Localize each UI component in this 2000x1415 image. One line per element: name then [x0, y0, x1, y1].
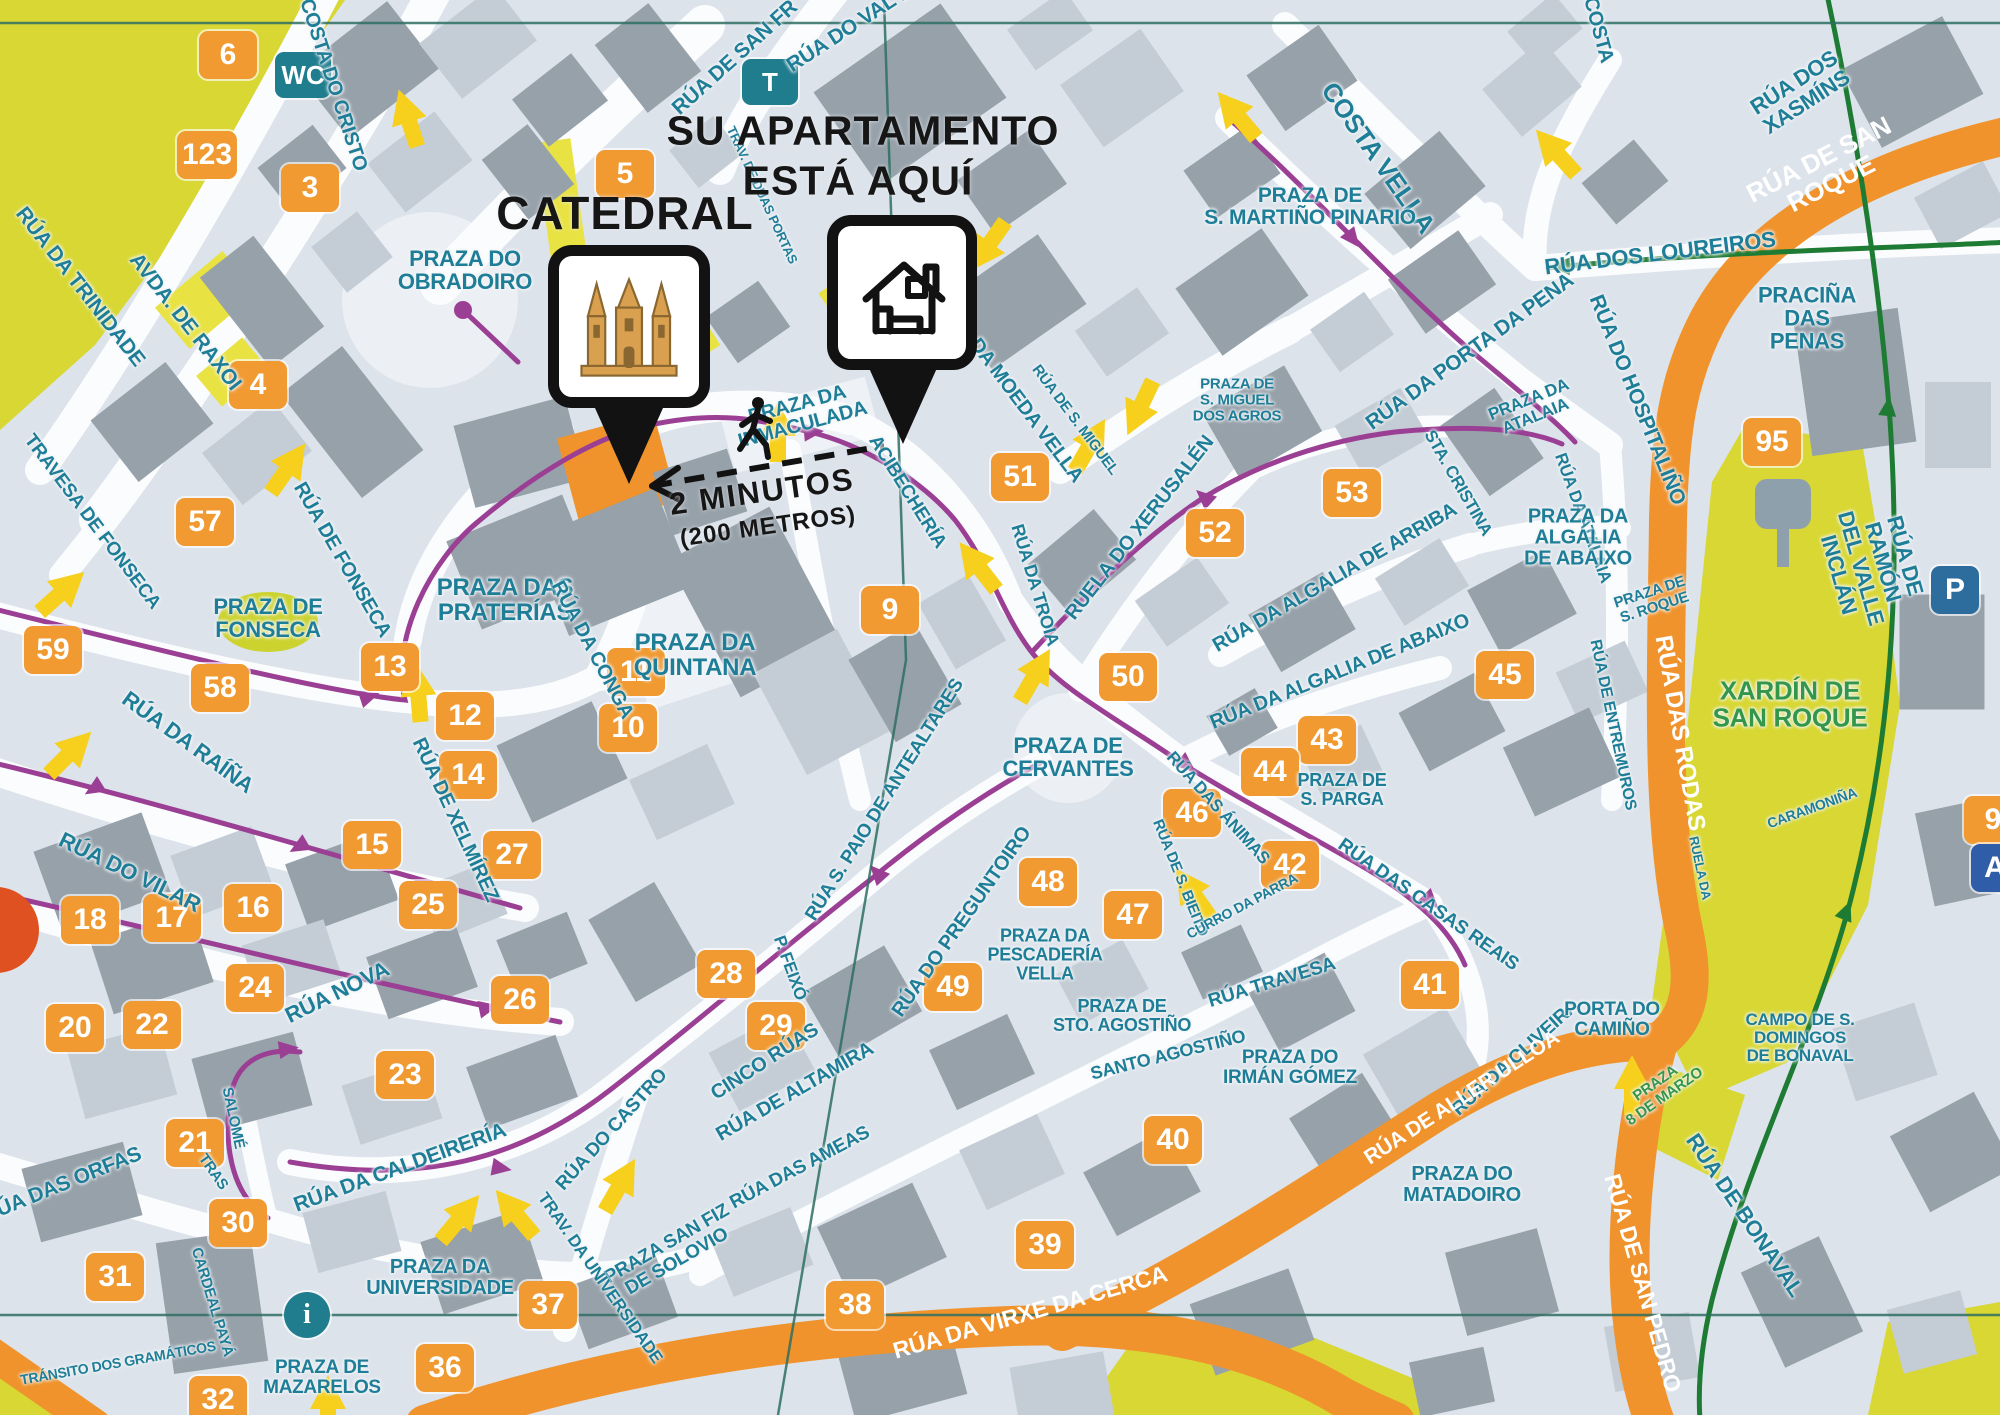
- marker-31[interactable]: 31: [86, 1253, 144, 1301]
- street-label: PRAZA DA QUINTANA: [634, 630, 756, 680]
- apartment-title-line2: ESTÁ AQUÍ: [743, 158, 974, 205]
- marker-41[interactable]: 41: [1401, 961, 1459, 1009]
- street-label: RÚA NOVA: [281, 957, 392, 1027]
- marker-26[interactable]: 26: [491, 976, 549, 1024]
- street-label: PRAZA DE STO. AGOSTIÑO: [1053, 997, 1191, 1035]
- street-label: PRAZA SAN FIZ DE SOLOVIO: [601, 1201, 742, 1306]
- map-overlay: 6WC12335T4575958131112141527102516171824…: [0, 0, 2000, 1415]
- cathedral-pin[interactable]: [548, 245, 710, 408]
- street-label: PRAZA DA ATALAIA: [1486, 376, 1578, 441]
- street-label: PRAZA DE S. PARGA: [1298, 771, 1387, 809]
- marker-13[interactable]: 13: [361, 643, 419, 691]
- street-label: RÚA DE RAMÓN DEL VALLE INCLÁN: [1810, 491, 1934, 640]
- street-label: PRAZA DO IRMÁN GÓMEZ: [1223, 1048, 1357, 1088]
- marker-12[interactable]: 12: [436, 692, 494, 740]
- street-label: RÚA DA TRINIDADE: [11, 203, 149, 371]
- marker-123[interactable]: 123: [177, 131, 237, 179]
- marker-20[interactable]: 20: [46, 1004, 104, 1052]
- map-stage: 6WC12335T4575958131112141527102516171824…: [0, 0, 2000, 1415]
- marker-37[interactable]: 37: [519, 1281, 577, 1329]
- marker-3[interactable]: 3: [281, 164, 339, 212]
- marker-40[interactable]: 40: [1144, 1116, 1202, 1164]
- marker-30[interactable]: 30: [209, 1199, 267, 1247]
- marker-95[interactable]: 95: [1743, 418, 1801, 466]
- marker-24[interactable]: 24: [226, 964, 284, 1012]
- street-label: RÚA DE ALLER ULLOA: [1361, 1027, 1564, 1169]
- cathedral-title: CATEDRAL: [496, 186, 754, 240]
- marker-47[interactable]: 47: [1104, 891, 1162, 939]
- street-label: RÚA DO VAL D: [783, 0, 917, 77]
- street-label: AVDA. DE RAXOI: [125, 249, 245, 394]
- street-label: ACIBECHERÍA: [864, 432, 949, 552]
- marker-32[interactable]: 32: [189, 1376, 247, 1415]
- street-label: PRAZA 8 DE MARZO: [1614, 1051, 1705, 1128]
- marker-18[interactable]: 18: [61, 896, 119, 944]
- house-bed-icon: [852, 243, 952, 343]
- street-label: COSTA: [1579, 0, 1617, 65]
- street-label: RÚA DO HOSPITALIÑO: [1585, 292, 1690, 508]
- street-label: CURRO DA PARRA: [1184, 871, 1300, 942]
- street-label: PRAZA DE S. MARTIÑO PINARIO: [1204, 185, 1416, 229]
- street-label: CAMPO DE S. DOMINGOS DE BONAVAL: [1700, 1011, 1900, 1065]
- marker-22[interactable]: 22: [123, 1001, 181, 1049]
- marker-59[interactable]: 59: [24, 626, 82, 674]
- marker-9[interactable]: 9: [861, 586, 919, 634]
- apartment-title-line1: SU APARTAMENTO: [667, 108, 1060, 155]
- marker-58[interactable]: 58: [191, 664, 249, 712]
- street-label: RÚA DAS RODAS: [1650, 633, 1709, 832]
- street-label: RÚA DAS AMEAS: [727, 1123, 873, 1213]
- street-label: RÚA TRAVESA: [1206, 954, 1338, 1012]
- marker-39[interactable]: 39: [1016, 1221, 1074, 1269]
- marker-16[interactable]: 16: [224, 884, 282, 932]
- street-label: TRÁNSITO DOS GRAMÁTICOS: [19, 1339, 217, 1388]
- marker-48[interactable]: 48: [1019, 858, 1077, 906]
- street-label: RÚA DOS LOUREIROS: [1543, 227, 1777, 278]
- street-label: PRAZA DA ALGALIA DE ABAIXO: [1524, 507, 1632, 570]
- street-label: RÚA DE ENTREMUROS: [1586, 638, 1639, 812]
- highlight-circle: [0, 887, 39, 973]
- marker-43[interactable]: 43: [1298, 716, 1356, 764]
- cathedral-pin-pointer: [595, 408, 663, 484]
- street-label: TRAS: [195, 1151, 231, 1193]
- street-label: TRAVESA DE FONSECA: [20, 431, 164, 613]
- marker-25[interactable]: 25: [399, 881, 457, 929]
- marker-15[interactable]: 15: [343, 821, 401, 869]
- cathedral-icon: [575, 273, 683, 381]
- street-label: PORTA DO CAMIÑO: [1564, 1000, 1660, 1040]
- marker-38[interactable]: 38: [826, 1281, 884, 1329]
- apartment-pin-pointer: [869, 368, 937, 444]
- street-label: PRAZA DA PESCADERÍA VELLA: [987, 927, 1102, 984]
- street-label: PRAZA DE MAZARELOS: [263, 1358, 381, 1398]
- street-label: PRAZA DO OBRADOIRO: [398, 247, 532, 293]
- street-label: PRAZA DA UNIVERSIDADE: [366, 1257, 514, 1299]
- marker-P[interactable]: P: [1931, 566, 1979, 614]
- walking-person-icon: [732, 395, 788, 465]
- street-label: RÚA DE BONAVAL: [1682, 1129, 1808, 1300]
- marker-51[interactable]: 51: [991, 453, 1049, 501]
- street-label: PRAZA DE FONSECA: [213, 595, 322, 641]
- street-label: RÚA DAS CASAS REAIS: [1334, 835, 1522, 975]
- street-label: RÚA DA VIRXE DA CERCA: [890, 1261, 1169, 1362]
- marker-53[interactable]: 53: [1323, 469, 1381, 517]
- marker-36[interactable]: 36: [416, 1344, 474, 1392]
- marker-57[interactable]: 57: [176, 498, 234, 546]
- marker-28[interactable]: 28: [697, 950, 755, 998]
- street-label: PRACIÑA DAS PENAS: [1758, 283, 1856, 352]
- street-label: RÚA DE SAN PEDRO: [1600, 1171, 1685, 1395]
- marker-45[interactable]: 45: [1476, 651, 1534, 699]
- marker-23[interactable]: 23: [376, 1051, 434, 1099]
- marker-A[interactable]: A: [1971, 844, 2000, 892]
- street-label: PRAZA DE S. ROQUE: [1612, 574, 1692, 627]
- street-label: RÚA S. PAIO DE ANTEALTARES: [802, 676, 968, 925]
- street-label: RÚA DO CASTRO: [552, 1065, 671, 1194]
- street-label: P. FEIXÓ: [770, 933, 810, 1002]
- street-label: RUELA DA: [1687, 835, 1714, 901]
- marker-44[interactable]: 44: [1241, 748, 1299, 796]
- apartment-pin[interactable]: [827, 215, 977, 370]
- street-label: RÚA DAS ORFAS: [0, 1143, 145, 1227]
- marker-9[interactable]: 9: [1964, 796, 2000, 844]
- street-label: RÚA DA TROIA: [1008, 522, 1063, 648]
- marker-6[interactable]: 6: [199, 31, 257, 79]
- street-label: PRAZA DE S. MIGUEL DOS AGROS: [1193, 376, 1281, 423]
- marker-52[interactable]: 52: [1186, 509, 1244, 557]
- street-label: CARAMONIÑA: [1765, 785, 1859, 831]
- street-label: PRAZA DE CERVANTES: [1003, 734, 1134, 780]
- street-label: XARDÍN DE SAN ROQUE: [1713, 678, 1868, 733]
- marker-50[interactable]: 50: [1099, 653, 1157, 701]
- street-label: PRAZA DO MATADOIRO: [1403, 1164, 1521, 1206]
- marker-i[interactable]: i: [284, 1292, 330, 1338]
- street-label: RÚA DA CALDEIRERÍA: [291, 1119, 509, 1216]
